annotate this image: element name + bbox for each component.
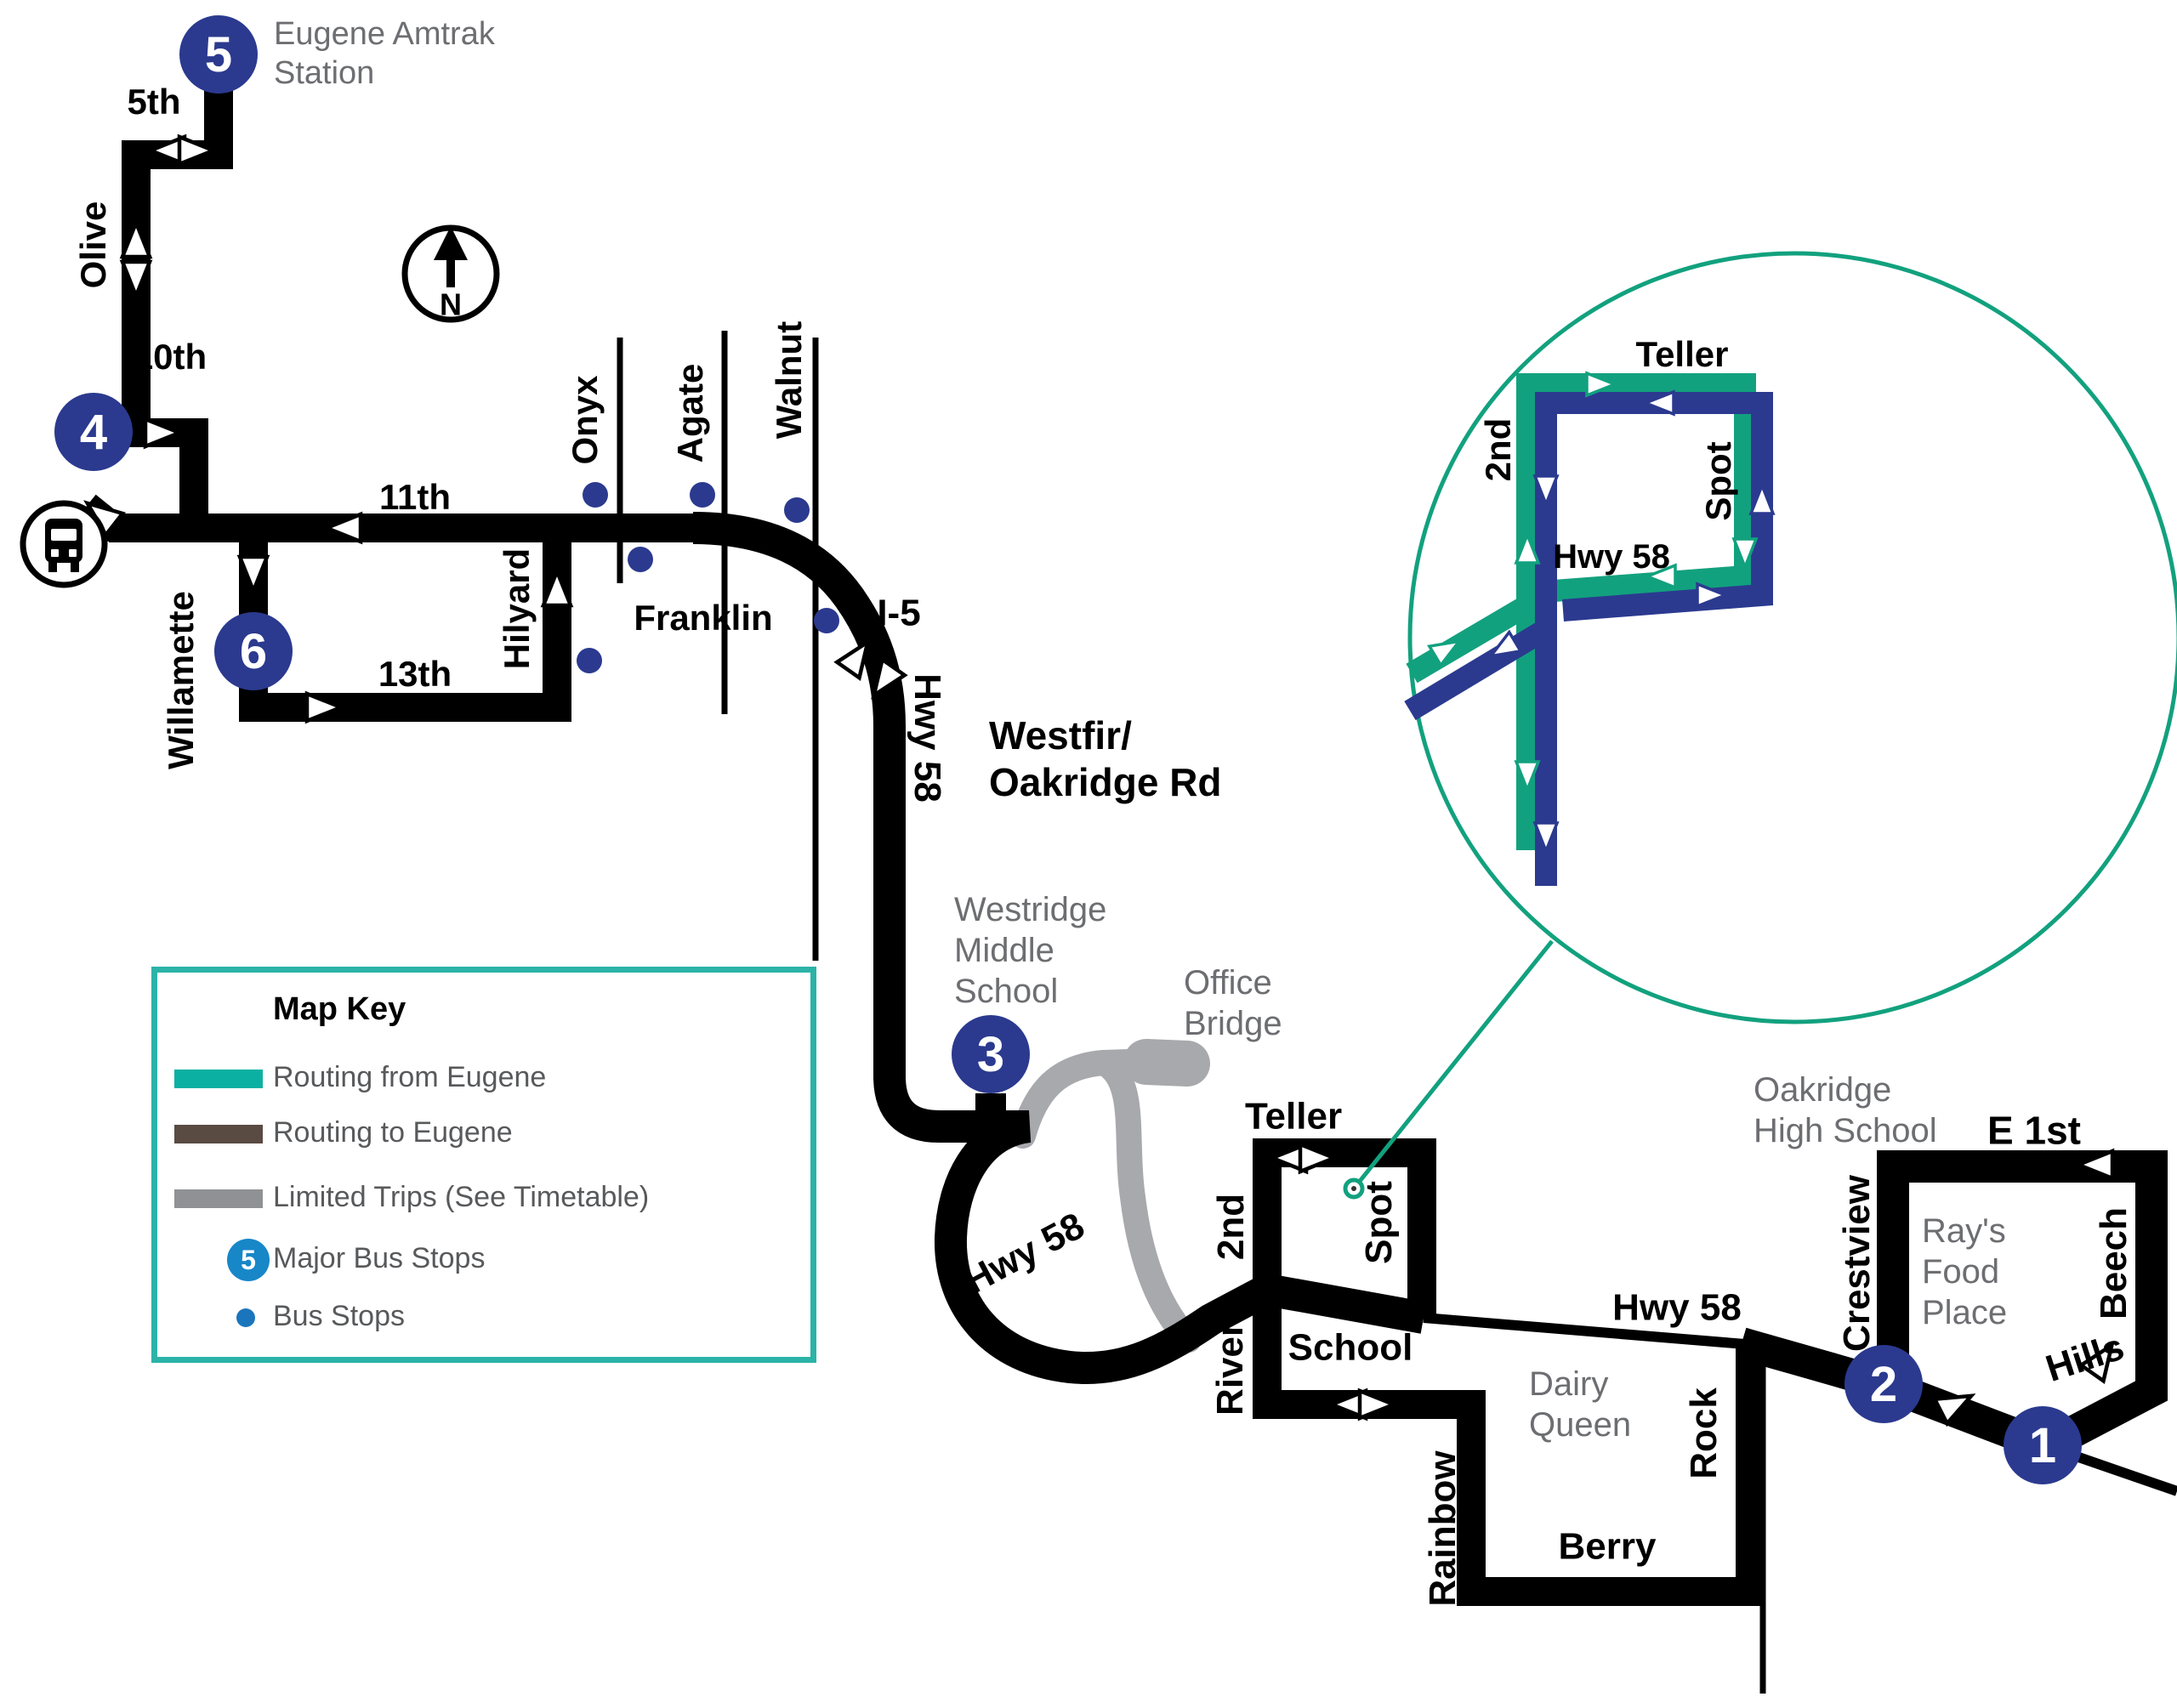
label-oakridge-high-school: Oakridge High School — [1754, 1070, 1937, 1151]
map-key-title: Map Key — [273, 991, 406, 1028]
label-2nd: 2nd — [1210, 1194, 1253, 1260]
key-label-routing-to-eugene: Routing to Eugene — [273, 1116, 513, 1149]
label-teller: Teller — [1245, 1096, 1342, 1139]
label-river: River — [1209, 1322, 1252, 1416]
major-stop-2: 2 — [1844, 1345, 1923, 1423]
label-e-1st: E 1st — [1987, 1109, 2081, 1154]
major-stop-3: 3 — [952, 1015, 1030, 1093]
bus-stop-dot — [690, 482, 715, 508]
major-stop-5: 5 — [179, 15, 258, 94]
label-school: School — [1288, 1327, 1413, 1370]
bus-station-icon — [23, 503, 105, 585]
label-berry: Berry — [1559, 1526, 1657, 1569]
inset-label-spot: Spot — [1698, 441, 1739, 520]
label-rainbow: Rainbow — [1422, 1450, 1464, 1606]
major-stop-6: 6 — [214, 612, 293, 690]
inset-connector-line — [1345, 941, 1552, 1197]
major-stop-1: 1 — [2004, 1406, 2082, 1484]
key-label-routing-from-eugene: Routing from Eugene — [273, 1061, 546, 1094]
map-key-panel: Map Key Routing from Eugene Routing to E… — [151, 967, 816, 1363]
label-office-bridge: Office Bridge — [1184, 962, 1282, 1044]
label-beech: Beech — [2093, 1207, 2135, 1319]
transit-route-map: Eugene Amtrak Station 5th Olive 10th 11t… — [0, 0, 2177, 1708]
label-crestview: Crestview — [1836, 1175, 1879, 1352]
major-stop-4: 4 — [54, 393, 133, 471]
label-spot: Spot — [1358, 1181, 1401, 1264]
key-bus-stop-icon — [236, 1308, 255, 1327]
key-swatch-routing-from-eugene — [174, 1070, 263, 1088]
bus-stop-dot — [628, 547, 653, 572]
label-walnut: Walnut — [769, 321, 810, 439]
key-label-limited-trips: Limited Trips (See Timetable) — [273, 1181, 649, 1214]
key-swatch-routing-to-eugene — [174, 1125, 263, 1143]
label-dairy-queen: Dairy Queen — [1529, 1364, 1631, 1445]
label-hwy58-i5: Hwy 58 — [906, 673, 948, 803]
label-13th: 13th — [378, 654, 452, 695]
key-major-stop-icon: 5 — [227, 1239, 270, 1281]
inset-label-teller: Teller — [1636, 334, 1729, 375]
label-westridge-middle-school: Westridge Middle School — [954, 889, 1106, 1012]
label-rock: Rock — [1683, 1387, 1725, 1479]
route-map-canvas — [0, 0, 2177, 1708]
label-i5: I-5 — [877, 593, 920, 636]
label-franklin: Franklin — [634, 598, 772, 638]
label-agate: Agate — [670, 364, 711, 463]
label-onyx: Onyx — [565, 375, 605, 464]
label-olive: Olive — [73, 201, 114, 289]
label-11th: 11th — [379, 477, 451, 518]
bus-stop-dot — [577, 648, 602, 673]
label-rays-food-place: Ray's Food Place — [1922, 1211, 2007, 1333]
bus-stop-dot — [784, 497, 810, 523]
label-10th: 10th — [134, 337, 207, 377]
inset-label-2nd: 2nd — [1478, 418, 1519, 482]
label-5th: 5th — [128, 82, 181, 122]
bus-stop-dots — [577, 482, 839, 673]
label-willamette: Willamette — [161, 591, 202, 769]
key-label-major-bus-stops: Major Bus Stops — [273, 1242, 485, 1275]
bus-stop-dot — [583, 482, 608, 508]
label-hilyard: Hilyard — [497, 548, 537, 669]
label-westfir-oakridge-rd: Westfir/ Oakridge Rd — [989, 712, 1222, 806]
key-label-bus-stops: Bus Stops — [273, 1300, 405, 1333]
bus-stop-dot — [814, 608, 839, 633]
key-swatch-limited-trips — [174, 1189, 263, 1208]
limited-trips-road — [1023, 1060, 1189, 1340]
label-eugene-amtrak-station: Eugene Amtrak Station — [274, 15, 495, 93]
compass-n-label: N — [440, 287, 462, 321]
inset-label-hwy58: Hwy 58 — [1553, 537, 1670, 576]
label-hwy58-oakridge: Hwy 58 — [1612, 1287, 1742, 1331]
